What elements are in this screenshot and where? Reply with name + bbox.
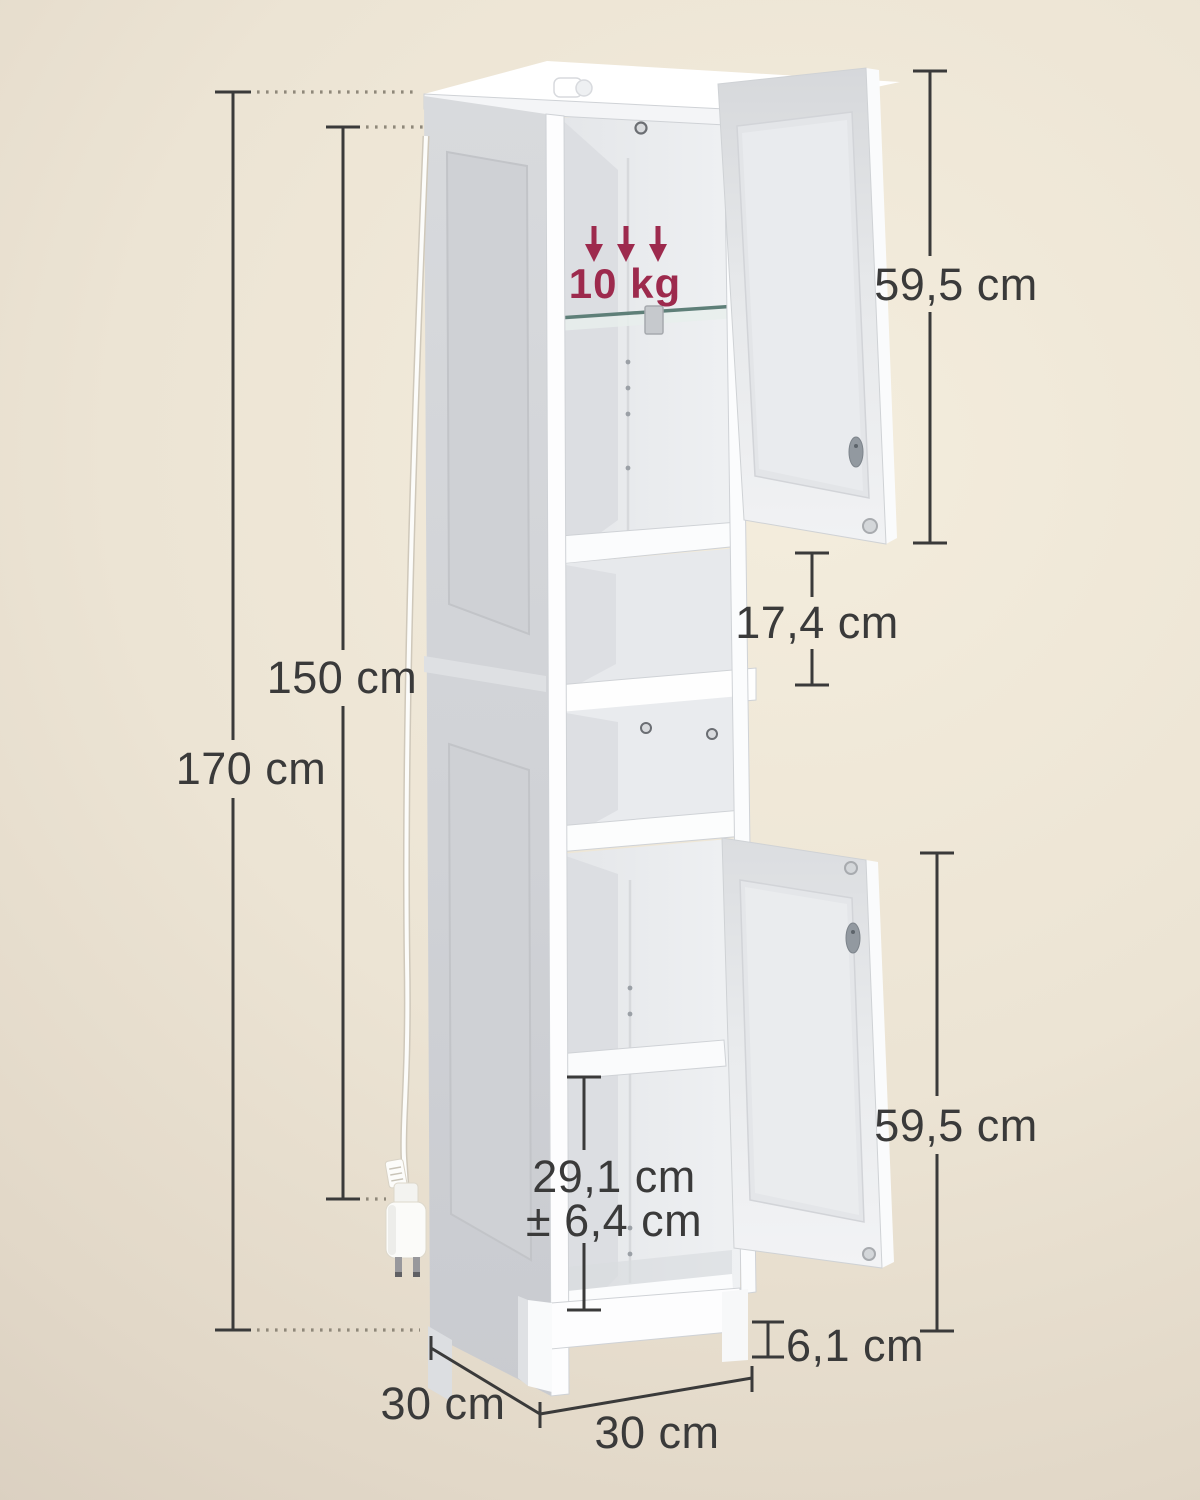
power-plug xyxy=(386,1183,426,1277)
door-handle xyxy=(846,923,860,953)
load-capacity-label: 10 kg xyxy=(569,260,681,307)
dim-foot-height-label: 6,1 cm xyxy=(786,1320,924,1371)
plug-pin-tip xyxy=(395,1272,402,1277)
upper-left-inner-wall xyxy=(560,118,618,562)
product-dimension-diagram: 10 kg 170 cm 150 cm 59,5 cm 17,4 cm 59,5… xyxy=(0,0,1200,1500)
dim-open-compartment-height: 17,4 cm xyxy=(735,553,899,685)
lower-door-open xyxy=(722,838,894,1268)
dim-shelf-clearance-tolerance-label: ± 6,4 cm xyxy=(526,1195,702,1246)
glass-shelf-bracket xyxy=(645,306,663,334)
upper-door-panel-center xyxy=(742,120,863,491)
dim-upper-door-height-label: 59,5 cm xyxy=(874,259,1038,310)
upper-door-open xyxy=(718,68,897,544)
dim-lower-door-height: 59,5 cm xyxy=(874,853,1038,1331)
hinge-icon xyxy=(845,862,857,874)
plug-pin-tip xyxy=(413,1272,420,1277)
lower-open-niche-interior xyxy=(558,696,744,852)
dim-depth-label: 30 cm xyxy=(380,1378,505,1429)
cabinet-diagram-canvas: 10 kg 170 cm 150 cm 59,5 cm 17,4 cm 59,5… xyxy=(0,0,1200,1500)
side-recessed-panel-lower xyxy=(449,744,531,1260)
dim-upper-door-height: 59,5 cm xyxy=(874,71,1038,543)
plug-body-shade xyxy=(388,1205,396,1255)
dim-total-height: 170 cm xyxy=(176,92,420,1330)
dim-open-compartment-height-label: 17,4 cm xyxy=(735,597,899,648)
door-handle xyxy=(849,437,863,467)
dim-total-height-label: 170 cm xyxy=(176,743,327,794)
leg-front-left-side xyxy=(518,1296,528,1386)
lower-door-panel-center xyxy=(745,887,859,1215)
hinge-icon xyxy=(863,519,877,533)
hinge-icon xyxy=(863,1248,875,1260)
dim-foot-height: 6,1 cm xyxy=(752,1320,924,1371)
dim-body-height: 150 cm xyxy=(267,127,424,1199)
power-cord-and-plug xyxy=(385,136,426,1277)
dim-width-label: 30 cm xyxy=(594,1407,719,1458)
leg-front-right xyxy=(722,1289,748,1362)
dim-width: 30 cm xyxy=(540,1366,752,1458)
side-recessed-panel-upper xyxy=(447,152,529,634)
led-light-icon xyxy=(554,78,592,97)
upper-compartment-interior xyxy=(558,104,740,564)
dim-body-height-label: 150 cm xyxy=(267,652,418,703)
leg-front-left xyxy=(528,1300,552,1392)
dim-lower-door-height-label: 59,5 cm xyxy=(874,1100,1038,1151)
